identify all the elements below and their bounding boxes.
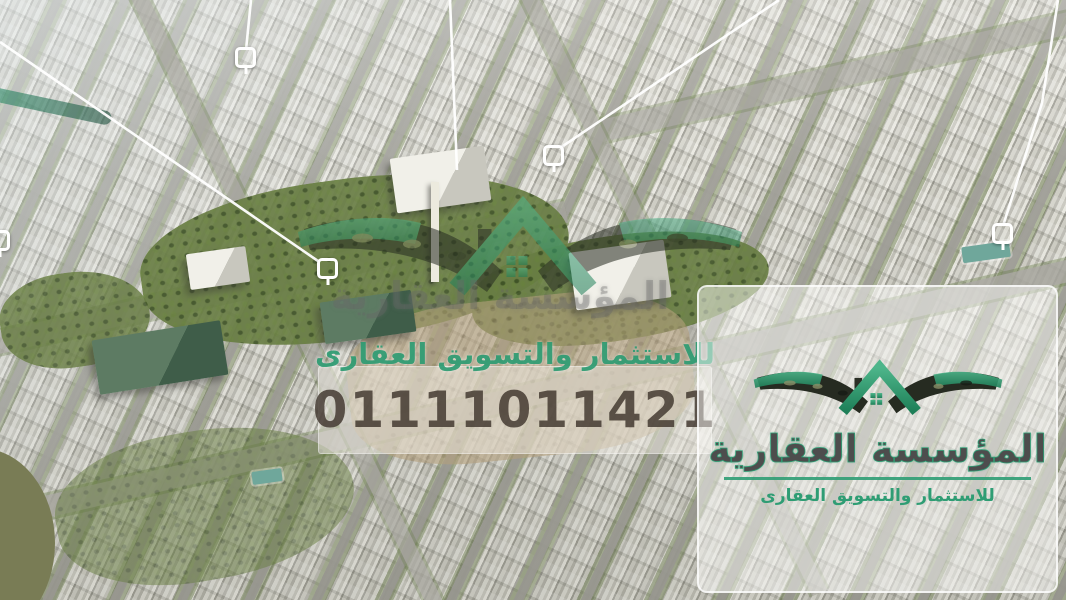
watermark-services-text: للاستثمار والتسويق العقارى bbox=[325, 337, 715, 371]
location-pin bbox=[0, 230, 10, 251]
location-pin bbox=[235, 47, 256, 68]
company-name: المؤسسة العقارية bbox=[708, 430, 1046, 470]
location-pin bbox=[317, 258, 338, 279]
location-pin bbox=[543, 145, 564, 166]
phone-panel: 01111011421 bbox=[318, 366, 712, 454]
location-pin bbox=[992, 223, 1013, 244]
phone-number: 01111011421 bbox=[313, 381, 718, 439]
company-logo bbox=[752, 346, 1004, 430]
brand-divider bbox=[724, 477, 1031, 480]
company-tagline: للاستثمار والتسويق العقارى bbox=[760, 486, 994, 506]
advertisement-image: المؤسسة العقارية 01111011421 للاستثمار و… bbox=[0, 0, 1066, 600]
brand-panel: المؤسسة العقارية للاستثمار والتسويق العق… bbox=[697, 285, 1058, 593]
watermark-company-name: المؤسسة العقارية bbox=[285, 274, 715, 318]
